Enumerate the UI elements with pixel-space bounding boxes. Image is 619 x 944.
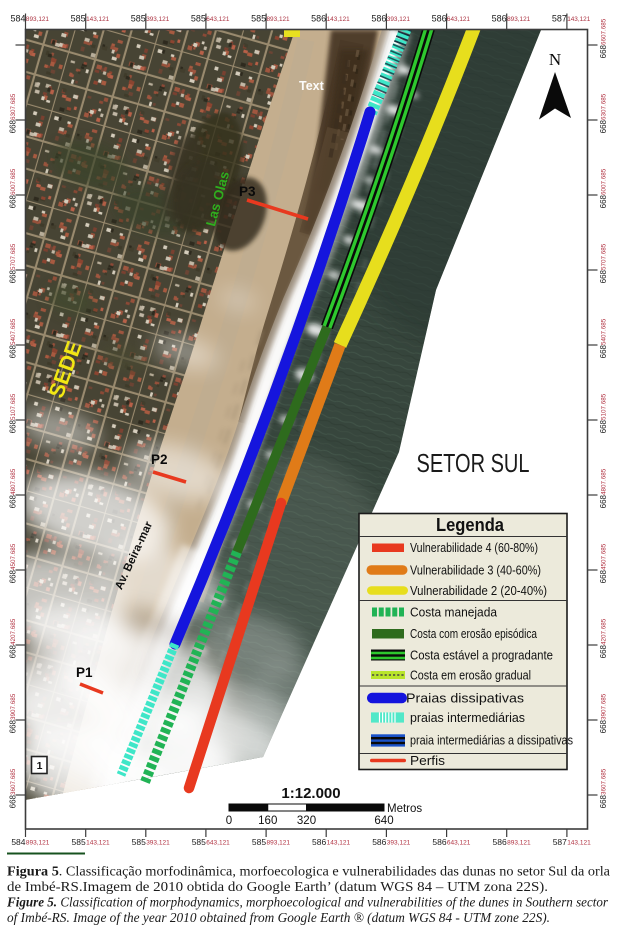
svg-text:586: 586 — [493, 837, 507, 847]
svg-text:668: 668 — [599, 344, 608, 358]
svg-text:143,121: 143,121 — [567, 16, 591, 23]
svg-text:893,121: 893,121 — [507, 16, 531, 23]
svg-text:4207.685: 4207.685 — [10, 618, 17, 645]
svg-text:Metros: Metros — [387, 803, 422, 815]
svg-text:893,121: 893,121 — [267, 840, 291, 847]
svg-text:586: 586 — [371, 14, 386, 24]
svg-text:586: 586 — [372, 837, 386, 847]
svg-text:6007.685: 6007.685 — [10, 168, 17, 195]
svg-text:668: 668 — [9, 419, 18, 433]
svg-text:668: 668 — [9, 344, 18, 358]
svg-text:Costa com erosão episódica: Costa com erosão episódica — [410, 626, 538, 641]
svg-text:143,121: 143,121 — [327, 840, 351, 847]
svg-text:143,121: 143,121 — [86, 840, 110, 847]
svg-text:Figure 5. Classification of mo: Figure 5. Classification of morphodynami… — [6, 895, 609, 910]
svg-text:586: 586 — [492, 14, 507, 24]
svg-text:668: 668 — [599, 419, 608, 433]
svg-text:5107.685: 5107.685 — [10, 393, 17, 420]
svg-text:Praias dissipativas: Praias dissipativas — [406, 691, 524, 706]
svg-text:668: 668 — [9, 719, 18, 733]
svg-text:585: 585 — [132, 837, 146, 847]
svg-text:643,121: 643,121 — [447, 840, 471, 847]
svg-text:587: 587 — [553, 837, 567, 847]
svg-text:Costa estável a progradante: Costa estável a progradante — [410, 648, 553, 663]
svg-text:587: 587 — [552, 14, 567, 24]
svg-text:586: 586 — [432, 14, 447, 24]
svg-text:4507.685: 4507.685 — [601, 543, 608, 570]
svg-text:praia intermediárias a dissipa: praia intermediárias a dissipativas — [410, 733, 573, 748]
svg-text:143,121: 143,121 — [567, 840, 591, 847]
svg-text:SETOR SUL: SETOR SUL — [417, 448, 530, 478]
svg-text:668: 668 — [9, 794, 18, 808]
svg-text:585: 585 — [72, 837, 86, 847]
svg-text:Figura 5. Classificação morfod: Figura 5. Classificação morfodinâmica, m… — [7, 864, 610, 879]
svg-text:P3: P3 — [239, 184, 256, 199]
svg-text:893,121: 893,121 — [26, 16, 50, 23]
svg-text:Vulnerabilidade 2 (20-40%): Vulnerabilidade 2 (20-40%) — [410, 583, 547, 598]
svg-text:668: 668 — [599, 644, 608, 658]
svg-text:393,121: 393,121 — [387, 840, 411, 847]
svg-text:Vulnerabilidade 4 (60-80%): Vulnerabilidade 4 (60-80%) — [410, 540, 538, 555]
svg-text:668: 668 — [9, 194, 18, 208]
svg-text:1:12.000: 1:12.000 — [281, 785, 340, 802]
svg-text:393,121: 393,121 — [146, 840, 170, 847]
svg-text:160: 160 — [258, 815, 277, 827]
svg-text:of Imbé-RS. Image of the year: of Imbé-RS. Image of the year 2010 obtai… — [7, 910, 550, 926]
svg-text:668: 668 — [9, 494, 18, 508]
svg-text:Costa em erosão gradual: Costa em erosão gradual — [410, 668, 531, 683]
svg-text:4807.685: 4807.685 — [601, 468, 608, 495]
svg-text:643,121: 643,121 — [206, 840, 230, 847]
svg-text:Vulnerabilidade 3 (40-60%): Vulnerabilidade 3 (40-60%) — [410, 563, 541, 578]
svg-text:893,121: 893,121 — [267, 16, 291, 23]
svg-text:Perfis: Perfis — [410, 753, 445, 768]
svg-text:1: 1 — [37, 760, 43, 772]
svg-text:143,121: 143,121 — [327, 16, 351, 23]
svg-text:4507.685: 4507.685 — [10, 543, 17, 570]
svg-text:3907.685: 3907.685 — [601, 693, 608, 720]
svg-text:praias intermediárias: praias intermediárias — [410, 710, 525, 725]
svg-text:586: 586 — [311, 14, 326, 24]
svg-text:P2: P2 — [151, 452, 168, 467]
svg-text:668: 668 — [599, 269, 608, 283]
svg-text:585: 585 — [71, 14, 86, 24]
svg-text:N: N — [549, 50, 561, 69]
svg-text:668: 668 — [9, 569, 18, 583]
svg-text:668: 668 — [599, 494, 608, 508]
svg-text:584: 584 — [10, 14, 25, 24]
svg-text:585: 585 — [191, 14, 206, 24]
svg-text:393,121: 393,121 — [146, 16, 170, 23]
svg-text:668: 668 — [599, 569, 608, 583]
svg-text:de Imbé-RS.Imagem de 2010 obti: de Imbé-RS.Imagem de 2010 obtida do Goog… — [7, 879, 548, 895]
svg-text:5407.685: 5407.685 — [10, 318, 17, 345]
svg-text:893,121: 893,121 — [26, 840, 50, 847]
svg-text:643,121: 643,121 — [206, 16, 230, 23]
svg-text:4207.685: 4207.685 — [601, 618, 608, 645]
svg-text:Costa manejada: Costa manejada — [410, 605, 498, 620]
svg-text:6007.685: 6007.685 — [601, 168, 608, 195]
svg-text:893,121: 893,121 — [507, 840, 531, 847]
svg-text:Text: Text — [299, 79, 325, 93]
svg-text:5107.685: 5107.685 — [601, 393, 608, 420]
svg-text:584: 584 — [11, 837, 25, 847]
svg-text:586: 586 — [432, 837, 446, 847]
svg-text:668: 668 — [599, 794, 608, 808]
svg-text:668: 668 — [9, 119, 18, 133]
svg-text:5707.685: 5707.685 — [601, 243, 608, 270]
svg-text:585: 585 — [192, 837, 206, 847]
svg-text:143,121: 143,121 — [86, 16, 110, 23]
svg-text:5407.685: 5407.685 — [601, 318, 608, 345]
svg-text:643,121: 643,121 — [447, 16, 471, 23]
svg-text:Legenda: Legenda — [436, 514, 505, 535]
svg-text:668: 668 — [599, 44, 608, 58]
svg-text:668: 668 — [599, 194, 608, 208]
svg-text:6607.685: 6607.685 — [601, 18, 608, 45]
svg-text:P1: P1 — [76, 665, 93, 680]
svg-text:393,121: 393,121 — [387, 16, 411, 23]
svg-text:668: 668 — [599, 119, 608, 133]
svg-text:3907.685: 3907.685 — [10, 693, 17, 720]
svg-text:6307.685: 6307.685 — [601, 93, 608, 120]
svg-text:6307.685: 6307.685 — [10, 93, 17, 120]
svg-text:586: 586 — [312, 837, 326, 847]
svg-text:585: 585 — [131, 14, 146, 24]
svg-text:640: 640 — [374, 815, 393, 827]
svg-text:668: 668 — [9, 269, 18, 283]
svg-text:668: 668 — [599, 719, 608, 733]
svg-text:3607.685: 3607.685 — [601, 768, 608, 795]
svg-text:668: 668 — [9, 644, 18, 658]
svg-text:585: 585 — [251, 14, 266, 24]
svg-text:0: 0 — [226, 815, 232, 827]
svg-text:5707.685: 5707.685 — [10, 243, 17, 270]
svg-text:4807.685: 4807.685 — [10, 468, 17, 495]
svg-text:3607.685: 3607.685 — [10, 768, 17, 795]
svg-text:585: 585 — [252, 837, 266, 847]
svg-text:320: 320 — [297, 815, 316, 827]
